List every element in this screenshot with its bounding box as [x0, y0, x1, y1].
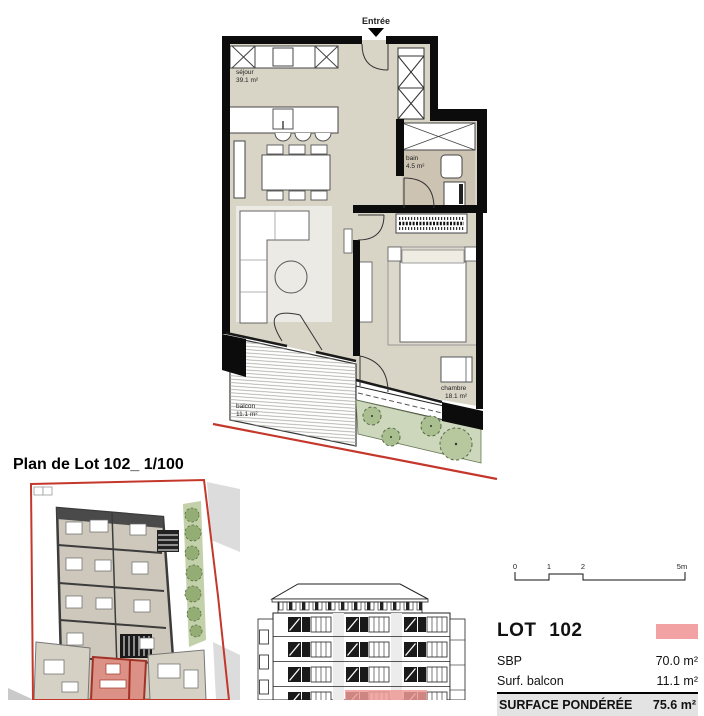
scale-tick: 1	[547, 562, 551, 571]
dining-area	[262, 145, 330, 200]
entry-closet	[398, 48, 424, 119]
scale-tick: 0	[513, 562, 517, 571]
chair	[289, 191, 305, 200]
lot-102-unit-highlight	[91, 657, 146, 700]
row-value: 70.0 m²	[656, 654, 698, 668]
balcon-label: balcon	[236, 403, 256, 410]
scale-tick: 2	[581, 562, 585, 571]
chair	[311, 191, 327, 200]
row-label: SBP	[497, 654, 522, 668]
right-wing	[450, 619, 465, 700]
chair	[289, 145, 305, 154]
nightstand	[388, 247, 401, 261]
bain-label: bain	[406, 155, 419, 162]
lot-table: SBP 70.0 m² Surf. balcon 11.1 m² SURFACE…	[497, 651, 698, 716]
site-garden	[183, 501, 206, 647]
chambre-label: chambre	[441, 385, 467, 392]
site-plan	[8, 480, 240, 700]
chambre-area: 18.1 m²	[445, 393, 468, 400]
bath-sink	[441, 155, 462, 178]
chair	[267, 191, 283, 200]
attic-band	[278, 602, 422, 613]
neighbor-parcel	[8, 688, 34, 700]
dining-table	[262, 155, 330, 190]
row-value: 75.6 m²	[653, 698, 698, 712]
table-row: SBP 70.0 m²	[497, 651, 698, 671]
lot-color-swatch	[656, 624, 698, 639]
row-label: Surf. balcon	[497, 674, 564, 688]
row-label: SURFACE PONDÉRÉE	[497, 698, 632, 712]
roof	[272, 584, 428, 599]
scale-bar: 0 1 2 5m	[513, 562, 687, 580]
chair	[267, 145, 283, 154]
desk	[441, 357, 472, 382]
lot-heading: LOT 102	[497, 620, 582, 642]
bed	[400, 262, 466, 342]
sejour-label: séjour	[236, 69, 255, 76]
table-row-highlight: SURFACE PONDÉRÉE 75.6 m²	[497, 692, 698, 716]
row-value: 11.1 m²	[657, 674, 698, 688]
balcon-area: 11.1 m²	[236, 411, 258, 418]
elevator	[157, 530, 179, 552]
sideboard	[344, 229, 352, 253]
architectural-plan-sheet: Entrée séjour 39.1 m² bain 4.5 m² chambr…	[0, 0, 704, 700]
page-title: Plan de Lot 102_ 1/100	[13, 456, 184, 474]
chair	[311, 145, 327, 154]
building-elevation	[258, 584, 465, 700]
lot-info-panel: LOT 102 SBP 70.0 m² Surf. balcon 11.1 m²…	[497, 618, 698, 716]
entry-label: Entrée	[362, 16, 390, 26]
entry-arrow-icon	[368, 28, 384, 37]
table-row: Surf. balcon 11.1 m²	[497, 671, 698, 691]
pillow	[402, 250, 464, 263]
main-floor-plan: Entrée séjour 39.1 m² bain 4.5 m² chambr…	[213, 16, 497, 479]
scale-tick: 5m	[677, 562, 687, 571]
sejour-area: 39.1 m²	[236, 77, 259, 84]
facade-lot-highlight	[345, 690, 427, 700]
tall-cabinet	[234, 141, 245, 198]
bain-area: 4.5 m²	[406, 163, 425, 170]
dresser	[359, 262, 372, 322]
